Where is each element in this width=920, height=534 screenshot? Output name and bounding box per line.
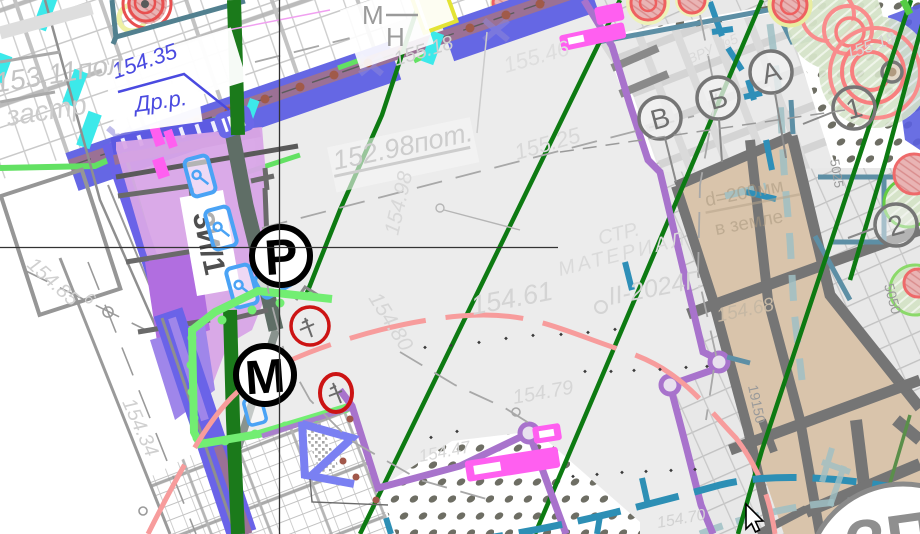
svg-text:Н: Н bbox=[386, 22, 405, 52]
svg-text:Р: Р bbox=[262, 228, 299, 286]
svg-text:М: М bbox=[362, 0, 384, 30]
svg-text:М: М bbox=[243, 350, 287, 406]
